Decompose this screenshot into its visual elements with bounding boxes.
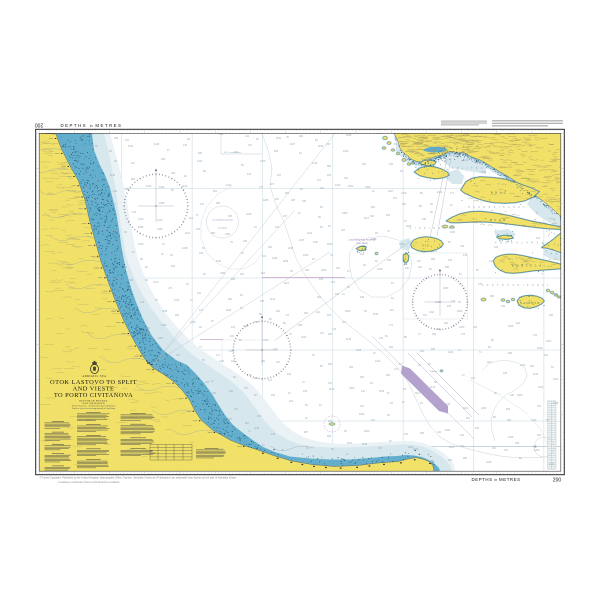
svg-text:TO PORTO CIVITANOVA: TO PORTO CIVITANOVA [54, 392, 133, 399]
svg-text:140: 140 [405, 267, 410, 270]
svg-text:1085: 1085 [159, 202, 165, 205]
svg-text:1033: 1033 [345, 310, 351, 313]
svg-text:ADRIATIC SEA: ADRIATIC SEA [82, 375, 106, 378]
svg-text:1118: 1118 [112, 230, 118, 233]
svg-text:167: 167 [248, 144, 253, 147]
svg-text:177: 177 [450, 192, 455, 195]
svg-text:905: 905 [420, 432, 425, 435]
svg-text:1012: 1012 [157, 219, 163, 222]
svg-text:1023: 1023 [159, 186, 165, 189]
svg-text:933: 933 [171, 265, 176, 268]
svg-text:1192: 1192 [329, 388, 335, 391]
svg-text:1226: 1226 [537, 347, 543, 350]
svg-text:1210: 1210 [312, 162, 318, 165]
svg-text:102: 102 [231, 360, 236, 363]
svg-text:208: 208 [431, 258, 436, 261]
svg-text:1174: 1174 [430, 386, 436, 389]
svg-text:112: 112 [423, 314, 427, 317]
svg-text:116: 116 [342, 321, 346, 324]
svg-text:128: 128 [503, 372, 508, 375]
svg-text:210: 210 [254, 377, 259, 380]
svg-text:198: 198 [298, 324, 303, 327]
svg-text:108: 108 [370, 215, 375, 218]
svg-text:1203: 1203 [520, 364, 526, 367]
svg-text:1248: 1248 [182, 247, 188, 250]
svg-text:151: 151 [471, 377, 476, 380]
svg-text:1247: 1247 [313, 241, 319, 244]
svg-text:139: 139 [196, 228, 201, 231]
svg-text:172: 172 [394, 368, 399, 371]
svg-text:1029: 1029 [303, 254, 309, 257]
svg-text:1247: 1247 [158, 337, 164, 340]
svg-text:107: 107 [277, 174, 282, 177]
svg-text:165: 165 [228, 215, 233, 218]
svg-text:195: 195 [435, 301, 440, 304]
svg-text:1006: 1006 [365, 186, 371, 189]
svg-text:931: 931 [228, 298, 233, 301]
svg-text:169: 169 [387, 259, 392, 262]
svg-text:Depths are in metres reduced a: Depths are in metres reduced approximate… [72, 408, 116, 410]
svg-text:123: 123 [89, 198, 94, 201]
svg-text:(see Note): (see Note) [218, 227, 227, 230]
svg-text:1196: 1196 [318, 145, 324, 148]
svg-text:1095: 1095 [138, 226, 144, 229]
svg-text:135: 135 [199, 252, 204, 255]
svg-text:1198: 1198 [553, 402, 559, 405]
svg-text:142: 142 [437, 431, 442, 434]
svg-text:133: 133 [273, 348, 278, 351]
svg-text:110: 110 [360, 253, 364, 256]
svg-text:992: 992 [327, 435, 332, 438]
svg-text:120: 120 [510, 394, 515, 397]
svg-text:976: 976 [320, 187, 325, 190]
svg-text:121: 121 [317, 179, 322, 182]
svg-text:A catalogue of Admiralty Chart: A catalogue of Admiralty Charts and Publ… [58, 481, 120, 484]
svg-text:971: 971 [390, 309, 395, 312]
svg-text:925: 925 [198, 152, 203, 155]
svg-text:133: 133 [328, 420, 333, 423]
svg-text:222: 222 [240, 273, 245, 276]
svg-text:156: 156 [386, 374, 391, 377]
svg-text:1246: 1246 [190, 321, 196, 324]
svg-text:188: 188 [490, 295, 495, 298]
svg-text:204: 204 [448, 459, 453, 462]
svg-text:906: 906 [285, 192, 290, 195]
svg-text:157: 157 [244, 387, 249, 390]
svg-text:141: 141 [245, 135, 250, 138]
svg-text:935: 935 [431, 348, 436, 351]
svg-text:179: 179 [234, 408, 239, 411]
svg-text:974: 974 [176, 354, 181, 357]
svg-text:224: 224 [289, 400, 294, 403]
svg-text:152: 152 [303, 390, 308, 393]
svg-text:1192: 1192 [128, 145, 134, 148]
svg-text:132: 132 [389, 163, 394, 166]
svg-text:1003: 1003 [443, 287, 449, 290]
svg-text:197: 197 [283, 215, 288, 218]
svg-text:1128: 1128 [552, 293, 558, 296]
svg-text:162: 162 [287, 373, 292, 376]
svg-text:181: 181 [544, 354, 549, 357]
svg-text:1011: 1011 [429, 311, 435, 314]
svg-text:143: 143 [332, 328, 337, 331]
svg-text:183: 183 [335, 293, 340, 296]
svg-text:156: 156 [360, 376, 365, 379]
svg-text:161: 161 [200, 203, 205, 206]
svg-text:162: 162 [444, 322, 449, 325]
svg-text:1150: 1150 [379, 390, 385, 393]
svg-text:1210: 1210 [335, 184, 341, 187]
svg-text:1150: 1150 [373, 313, 379, 316]
svg-text:1014: 1014 [375, 360, 381, 363]
svg-text:1047: 1047 [388, 190, 394, 193]
svg-text:165: 165 [515, 442, 520, 445]
svg-text:126: 126 [420, 350, 425, 353]
svg-text:1006: 1006 [161, 324, 167, 327]
svg-text:H V A R: H V A R [490, 219, 507, 222]
svg-text:157: 157 [371, 419, 376, 422]
svg-text:160: 160 [171, 172, 176, 175]
svg-text:181: 181 [230, 335, 235, 338]
svg-text:1181: 1181 [445, 429, 451, 432]
svg-text:1110: 1110 [98, 200, 104, 203]
svg-text:1015: 1015 [246, 213, 252, 216]
svg-text:130: 130 [261, 360, 266, 363]
svg-text:E.U. survey chart: E.U. survey chart [224, 151, 241, 154]
svg-text:209: 209 [299, 135, 304, 138]
svg-text:176: 176 [168, 287, 173, 290]
svg-text:191: 191 [231, 326, 236, 329]
svg-text:1242: 1242 [197, 160, 203, 163]
svg-text:903: 903 [463, 457, 468, 460]
svg-text:139: 139 [460, 245, 465, 248]
svg-text:1220: 1220 [534, 449, 540, 452]
svg-text:V I Š K I K A N A L: V I Š K I K A N A L [410, 227, 457, 230]
svg-text:© Crown Copyright. Published b: © Crown Copyright. Published by the Unit… [40, 477, 237, 480]
svg-text:197: 197 [328, 382, 333, 385]
svg-text:118: 118 [261, 272, 265, 275]
svg-text:1180: 1180 [216, 260, 222, 263]
svg-text:981: 981 [131, 178, 136, 181]
svg-text:225: 225 [291, 199, 296, 202]
svg-text:1142: 1142 [182, 185, 188, 188]
svg-text:187: 187 [341, 229, 346, 232]
svg-text:231: 231 [316, 311, 321, 314]
svg-text:161: 161 [360, 405, 365, 408]
svg-text:227: 227 [417, 260, 422, 263]
svg-text:163: 163 [404, 433, 409, 436]
svg-text:1103: 1103 [481, 171, 487, 174]
svg-text:1079: 1079 [138, 243, 144, 246]
svg-text:133: 133 [494, 246, 499, 249]
svg-text:214: 214 [197, 394, 202, 397]
svg-text:1235: 1235 [508, 436, 514, 439]
svg-text:222: 222 [516, 322, 521, 325]
svg-text:1051: 1051 [305, 458, 311, 461]
svg-text:153: 153 [473, 326, 478, 329]
svg-text:1141: 1141 [270, 298, 276, 301]
svg-text:1089: 1089 [342, 212, 348, 215]
svg-text:175: 175 [132, 211, 137, 214]
svg-text:1248: 1248 [346, 134, 352, 137]
svg-text:1241: 1241 [219, 360, 225, 363]
svg-text:126: 126 [448, 259, 453, 262]
svg-text:197: 197 [125, 139, 130, 142]
svg-text:240: 240 [271, 394, 276, 397]
svg-text:1142: 1142 [463, 159, 469, 162]
svg-text:186: 186 [125, 188, 130, 191]
svg-text:101: 101 [197, 292, 202, 295]
svg-text:(see Note): (see Note) [356, 242, 368, 245]
svg-text:122: 122 [113, 190, 118, 193]
svg-text:1052: 1052 [348, 185, 354, 188]
svg-text:1203: 1203 [459, 326, 465, 329]
svg-text:143: 143 [361, 390, 366, 393]
svg-text:1157: 1157 [347, 442, 353, 445]
svg-text:150: 150 [492, 447, 497, 450]
svg-text:1123: 1123 [533, 373, 539, 376]
svg-text:134: 134 [451, 300, 456, 303]
svg-text:212: 212 [87, 146, 92, 149]
svg-text:175: 175 [259, 186, 264, 189]
svg-text:156: 156 [260, 300, 265, 303]
svg-text:119: 119 [393, 197, 397, 200]
svg-text:1210: 1210 [153, 281, 159, 284]
svg-text:166: 166 [530, 365, 535, 368]
svg-text:146: 146 [271, 433, 276, 436]
svg-text:1081: 1081 [225, 233, 231, 236]
svg-text:1026: 1026 [243, 325, 249, 328]
svg-text:234: 234 [501, 305, 506, 308]
svg-text:1042: 1042 [301, 336, 307, 339]
svg-text:1159: 1159 [283, 260, 289, 263]
svg-text:1212: 1212 [174, 299, 180, 302]
svg-text:176: 176 [247, 173, 252, 176]
svg-text:119: 119 [276, 361, 280, 364]
svg-text:1235: 1235 [157, 228, 163, 231]
svg-text:DEPTHS in METRES: DEPTHS in METRES [472, 477, 521, 482]
svg-text:200: 200 [553, 477, 562, 483]
svg-text:1240: 1240 [272, 257, 278, 260]
svg-text:1220: 1220 [401, 192, 407, 195]
svg-text:182: 182 [349, 366, 354, 369]
svg-text:904: 904 [389, 346, 394, 349]
svg-text:231: 231 [504, 449, 509, 452]
svg-text:1063: 1063 [517, 394, 523, 397]
svg-text:186: 186 [129, 279, 134, 282]
svg-text:1225: 1225 [229, 350, 235, 353]
svg-text:L A S T O V S K I K A N A L: L A S T O V S K I K A N A L [482, 284, 550, 287]
svg-text:1041: 1041 [538, 386, 544, 389]
svg-text:1069: 1069 [263, 339, 269, 342]
svg-text:996: 996 [508, 352, 513, 355]
svg-text:176: 176 [533, 334, 538, 337]
svg-text:1243: 1243 [489, 260, 495, 263]
svg-text:110: 110 [131, 162, 135, 165]
svg-text:229: 229 [432, 333, 437, 336]
svg-text:125: 125 [386, 214, 391, 217]
svg-text:1158: 1158 [288, 247, 294, 250]
svg-text:1206: 1206 [263, 199, 269, 202]
svg-text:1111: 1111 [415, 392, 420, 395]
svg-text:1112: 1112 [364, 217, 370, 220]
svg-text:1000: 1000 [321, 269, 327, 272]
svg-text:213: 213 [536, 237, 541, 240]
svg-text:217: 217 [84, 188, 89, 191]
svg-text:155: 155 [446, 403, 451, 406]
svg-text:208: 208 [114, 137, 119, 140]
svg-text:1167: 1167 [299, 239, 305, 242]
svg-text:223: 223 [447, 305, 452, 308]
svg-text:126: 126 [475, 427, 480, 430]
svg-text:1126: 1126 [110, 174, 116, 177]
svg-text:100: 100 [212, 392, 217, 395]
svg-text:161: 161 [262, 255, 267, 258]
svg-text:171: 171 [216, 354, 221, 357]
svg-text:218: 218 [360, 296, 365, 299]
svg-text:1211: 1211 [307, 232, 313, 235]
svg-text:900: 900 [327, 165, 332, 168]
svg-text:1221: 1221 [448, 351, 454, 354]
svg-text:178: 178 [434, 405, 439, 408]
svg-text:233: 233 [326, 143, 331, 146]
svg-text:911: 911 [466, 417, 470, 420]
svg-text:235: 235 [328, 333, 333, 336]
svg-text:947: 947 [336, 267, 341, 270]
svg-text:184: 184 [362, 163, 367, 166]
svg-text:VIS: VIS [422, 245, 429, 248]
svg-text:929: 929 [274, 150, 279, 153]
svg-text:1113: 1113 [449, 446, 455, 449]
svg-text:1154: 1154 [450, 231, 456, 234]
svg-text:1235: 1235 [371, 238, 377, 241]
svg-text:1123: 1123 [101, 241, 107, 244]
svg-text:1139: 1139 [154, 143, 160, 146]
svg-text:196: 196 [302, 200, 307, 203]
svg-text:1239: 1239 [531, 419, 537, 422]
svg-text:181: 181 [418, 266, 423, 269]
svg-text:106: 106 [537, 405, 542, 408]
svg-text:1112: 1112 [185, 232, 191, 235]
svg-text:183: 183 [327, 174, 332, 177]
svg-text:146: 146 [183, 144, 188, 147]
svg-text:134: 134 [140, 301, 145, 304]
svg-text:1029: 1029 [508, 325, 514, 328]
svg-text:187: 187 [275, 198, 280, 201]
svg-text:967: 967 [304, 431, 309, 434]
svg-text:918: 918 [328, 363, 333, 366]
svg-text:1185: 1185 [226, 309, 232, 312]
svg-text:Local Magnetic Anomaly: Local Magnetic Anomaly [212, 219, 233, 222]
svg-text:152: 152 [327, 314, 332, 317]
svg-text:1169: 1169 [406, 225, 412, 228]
svg-text:223: 223 [234, 151, 239, 154]
svg-text:105: 105 [422, 218, 427, 221]
svg-text:1064: 1064 [359, 413, 365, 416]
svg-text:110: 110 [189, 217, 193, 220]
svg-text:1124: 1124 [254, 427, 260, 430]
svg-text:199: 199 [254, 321, 259, 324]
svg-text:DEPTHS in METRES: DEPTHS in METRES [61, 123, 123, 128]
svg-text:1052: 1052 [481, 407, 487, 410]
svg-text:147: 147 [268, 379, 273, 382]
svg-text:H V A R S K I K A N A L: H V A R S K I K A N A L [468, 206, 526, 209]
svg-text:1007: 1007 [546, 340, 552, 343]
svg-text:1079: 1079 [260, 160, 266, 163]
svg-text:236: 236 [402, 203, 407, 206]
svg-text:1243: 1243 [399, 243, 405, 246]
svg-text:125: 125 [478, 283, 483, 286]
svg-text:1134: 1134 [346, 338, 352, 341]
svg-text:187: 187 [331, 281, 336, 284]
svg-text:1043: 1043 [146, 185, 152, 188]
svg-text:1190: 1190 [276, 137, 282, 140]
svg-text:190: 190 [161, 158, 166, 161]
svg-text:1048: 1048 [486, 461, 492, 464]
svg-text:1161: 1161 [463, 407, 469, 410]
svg-text:960: 960 [216, 202, 221, 205]
svg-text:951: 951 [371, 206, 376, 209]
svg-text:966: 966 [211, 232, 216, 235]
svg-text:142: 142 [463, 254, 468, 257]
svg-text:1237: 1237 [100, 228, 106, 231]
svg-text:182: 182 [304, 312, 309, 315]
svg-text:108: 108 [549, 314, 554, 317]
svg-text:226: 226 [175, 314, 180, 317]
svg-text:1110: 1110 [284, 282, 290, 285]
svg-text:1111: 1111 [487, 361, 492, 364]
svg-text:961: 961 [245, 422, 250, 425]
svg-text:927: 927 [228, 418, 233, 421]
svg-text:147: 147 [320, 332, 325, 335]
svg-text:163: 163 [205, 381, 210, 384]
svg-text:177: 177 [389, 324, 394, 327]
svg-text:1014: 1014 [553, 378, 559, 381]
svg-text:1157: 1157 [290, 143, 296, 146]
svg-text:1040: 1040 [457, 310, 463, 313]
svg-text:222: 222 [276, 310, 281, 313]
svg-text:229: 229 [243, 240, 248, 243]
svg-text:1185: 1185 [162, 310, 168, 313]
svg-text:1185: 1185 [327, 243, 333, 246]
svg-text:182: 182 [305, 269, 310, 272]
svg-text:1210: 1210 [138, 218, 144, 221]
svg-text:1048: 1048 [377, 268, 383, 271]
svg-text:S P L I T S K I: S P L I T S K I [452, 167, 489, 170]
svg-text:1243: 1243 [343, 150, 349, 153]
svg-text:LASTOVO: LASTOVO [521, 302, 541, 305]
svg-text:226: 226 [229, 390, 234, 393]
svg-text:221: 221 [537, 434, 542, 437]
svg-text:174: 174 [461, 333, 466, 336]
svg-text:200: 200 [35, 122, 44, 128]
svg-text:151: 151 [460, 445, 465, 448]
svg-text:183: 183 [319, 278, 324, 281]
svg-text:198: 198 [445, 266, 450, 269]
svg-text:1198: 1198 [362, 443, 368, 446]
svg-text:961: 961 [213, 190, 218, 193]
svg-text:182: 182 [268, 246, 273, 249]
svg-text:1204: 1204 [437, 191, 443, 194]
svg-text:K O R Č U L A N S K I: K O R Č U L A N S K I [495, 242, 549, 245]
svg-text:976: 976 [506, 408, 511, 411]
svg-text:164: 164 [344, 177, 349, 180]
svg-text:1050: 1050 [349, 387, 355, 390]
svg-text:1183: 1183 [549, 463, 555, 466]
svg-text:206: 206 [507, 419, 512, 422]
svg-text:214: 214 [460, 434, 465, 437]
svg-text:1165: 1165 [145, 333, 151, 336]
